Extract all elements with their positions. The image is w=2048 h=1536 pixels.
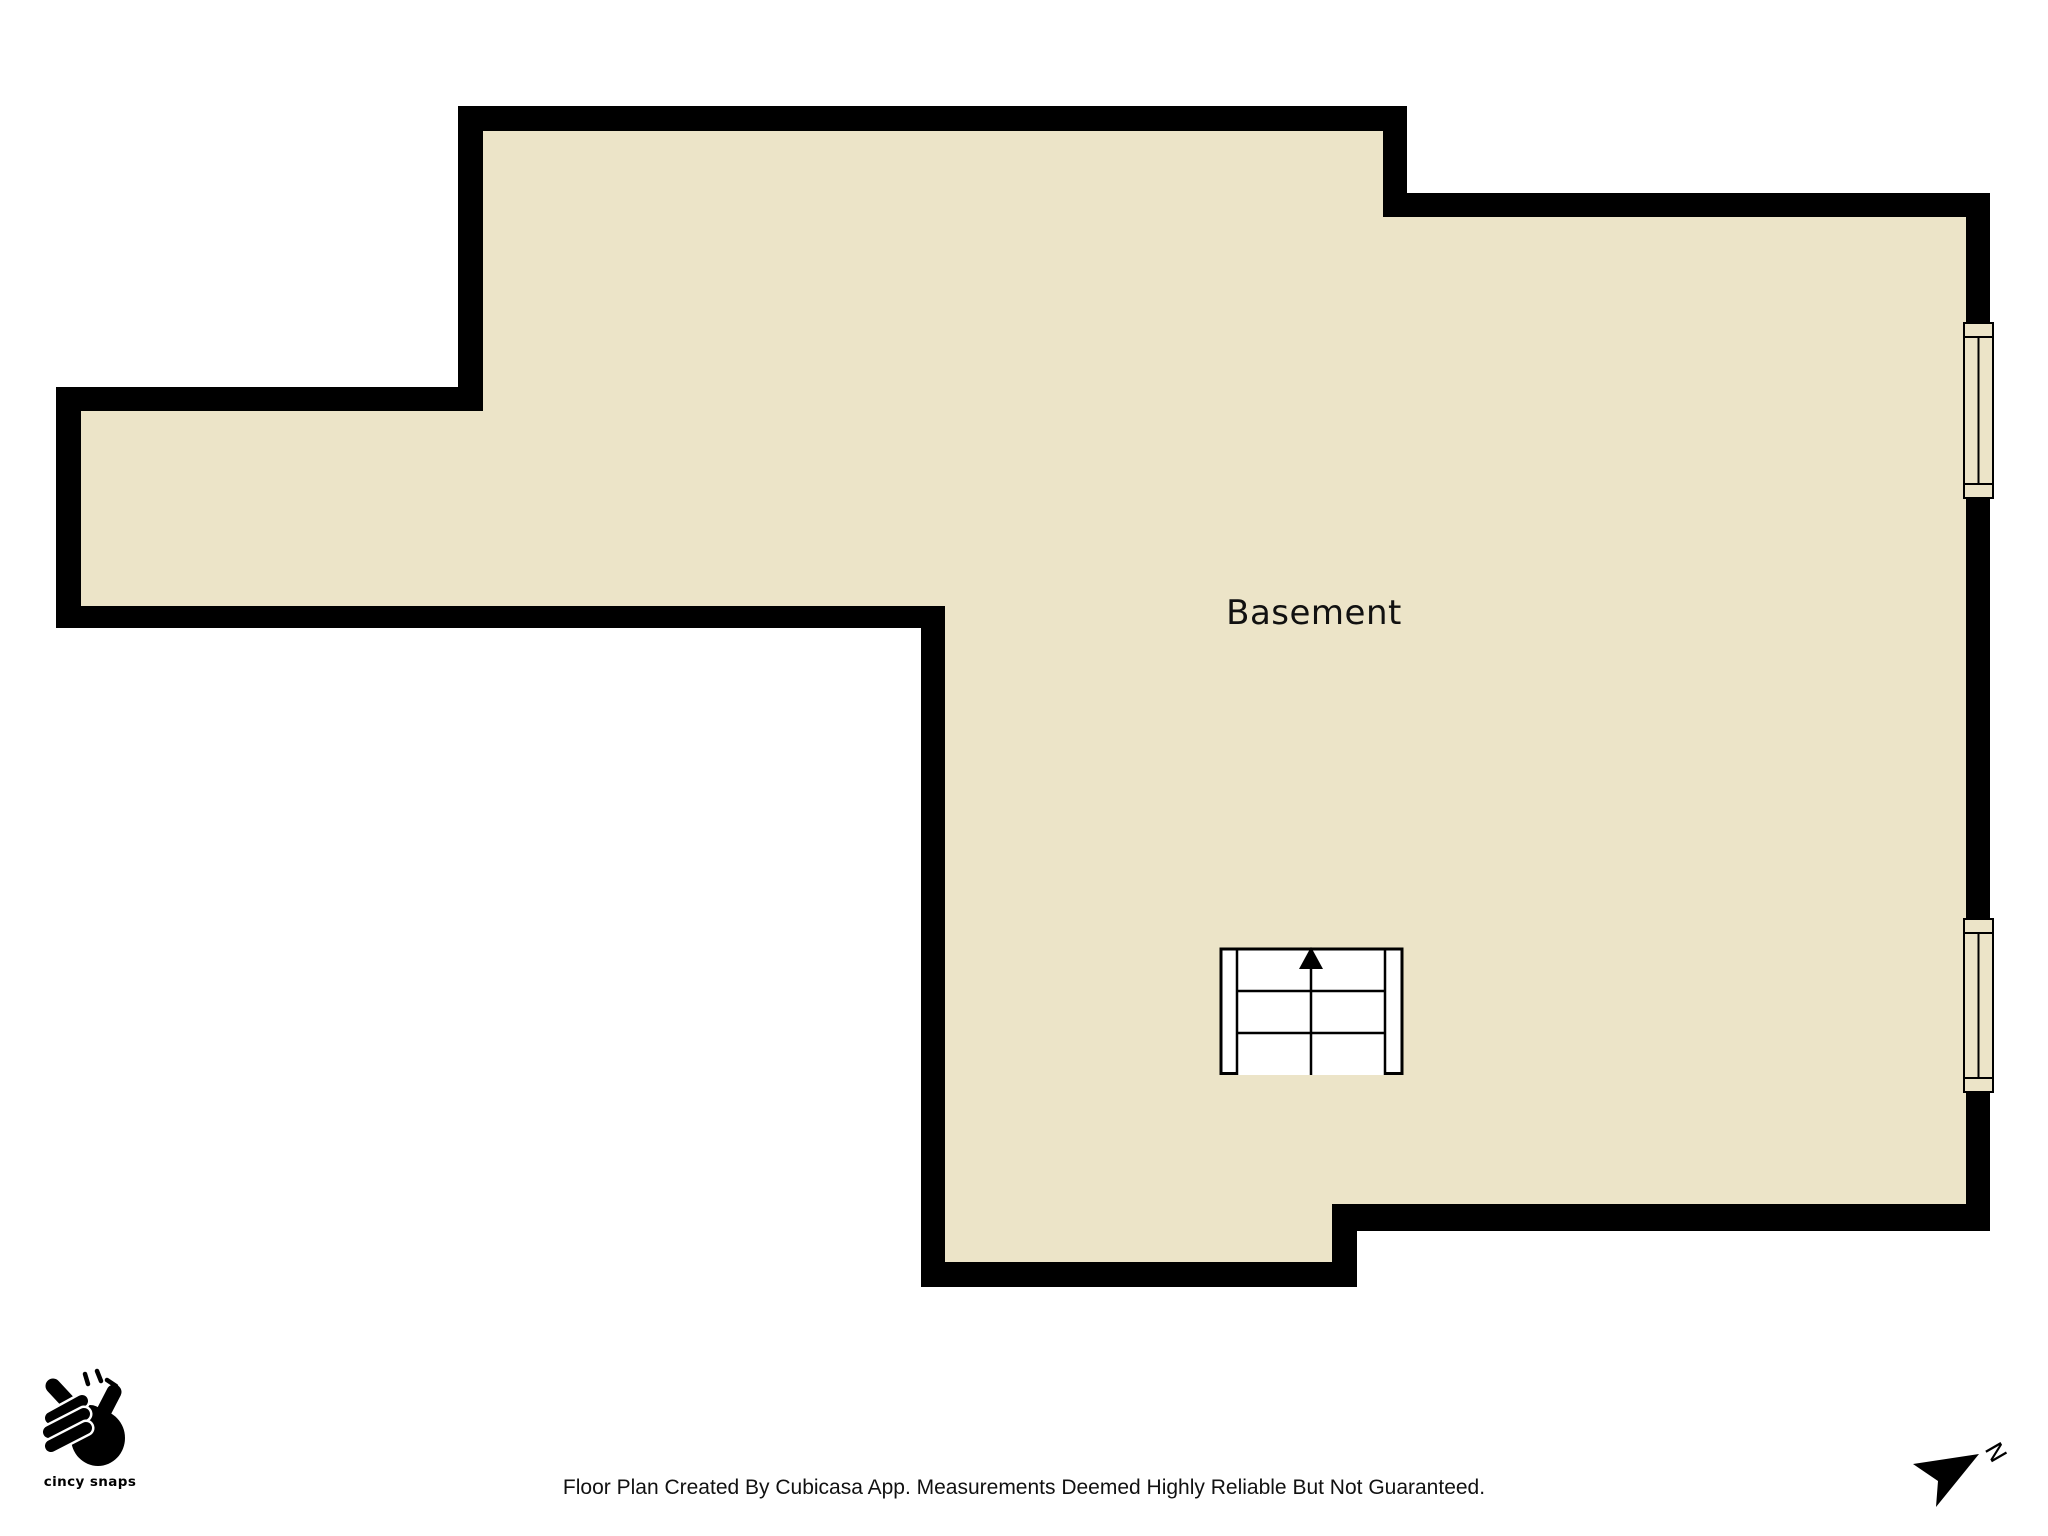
room-label-basement: Basement <box>1154 592 1474 634</box>
floor-plan-drawing <box>0 0 2048 1536</box>
window-right-lower <box>1964 919 1993 1092</box>
floor-plan-page: Basement cincy snaps Floor Plan Created … <box>0 0 2048 1536</box>
north-label: N <box>1979 1438 2012 1468</box>
window-right-upper <box>1964 323 1993 498</box>
basement-floor-area <box>81 131 1966 1262</box>
cincy-snaps-logo: cincy snaps <box>40 1368 150 1490</box>
staircase <box>1221 947 1402 1075</box>
north-arrow-icon: N <box>1895 1425 2020 1525</box>
disclaimer-text: Floor Plan Created By Cubicasa App. Meas… <box>0 1476 2048 1500</box>
snap-hand-icon <box>40 1368 140 1472</box>
